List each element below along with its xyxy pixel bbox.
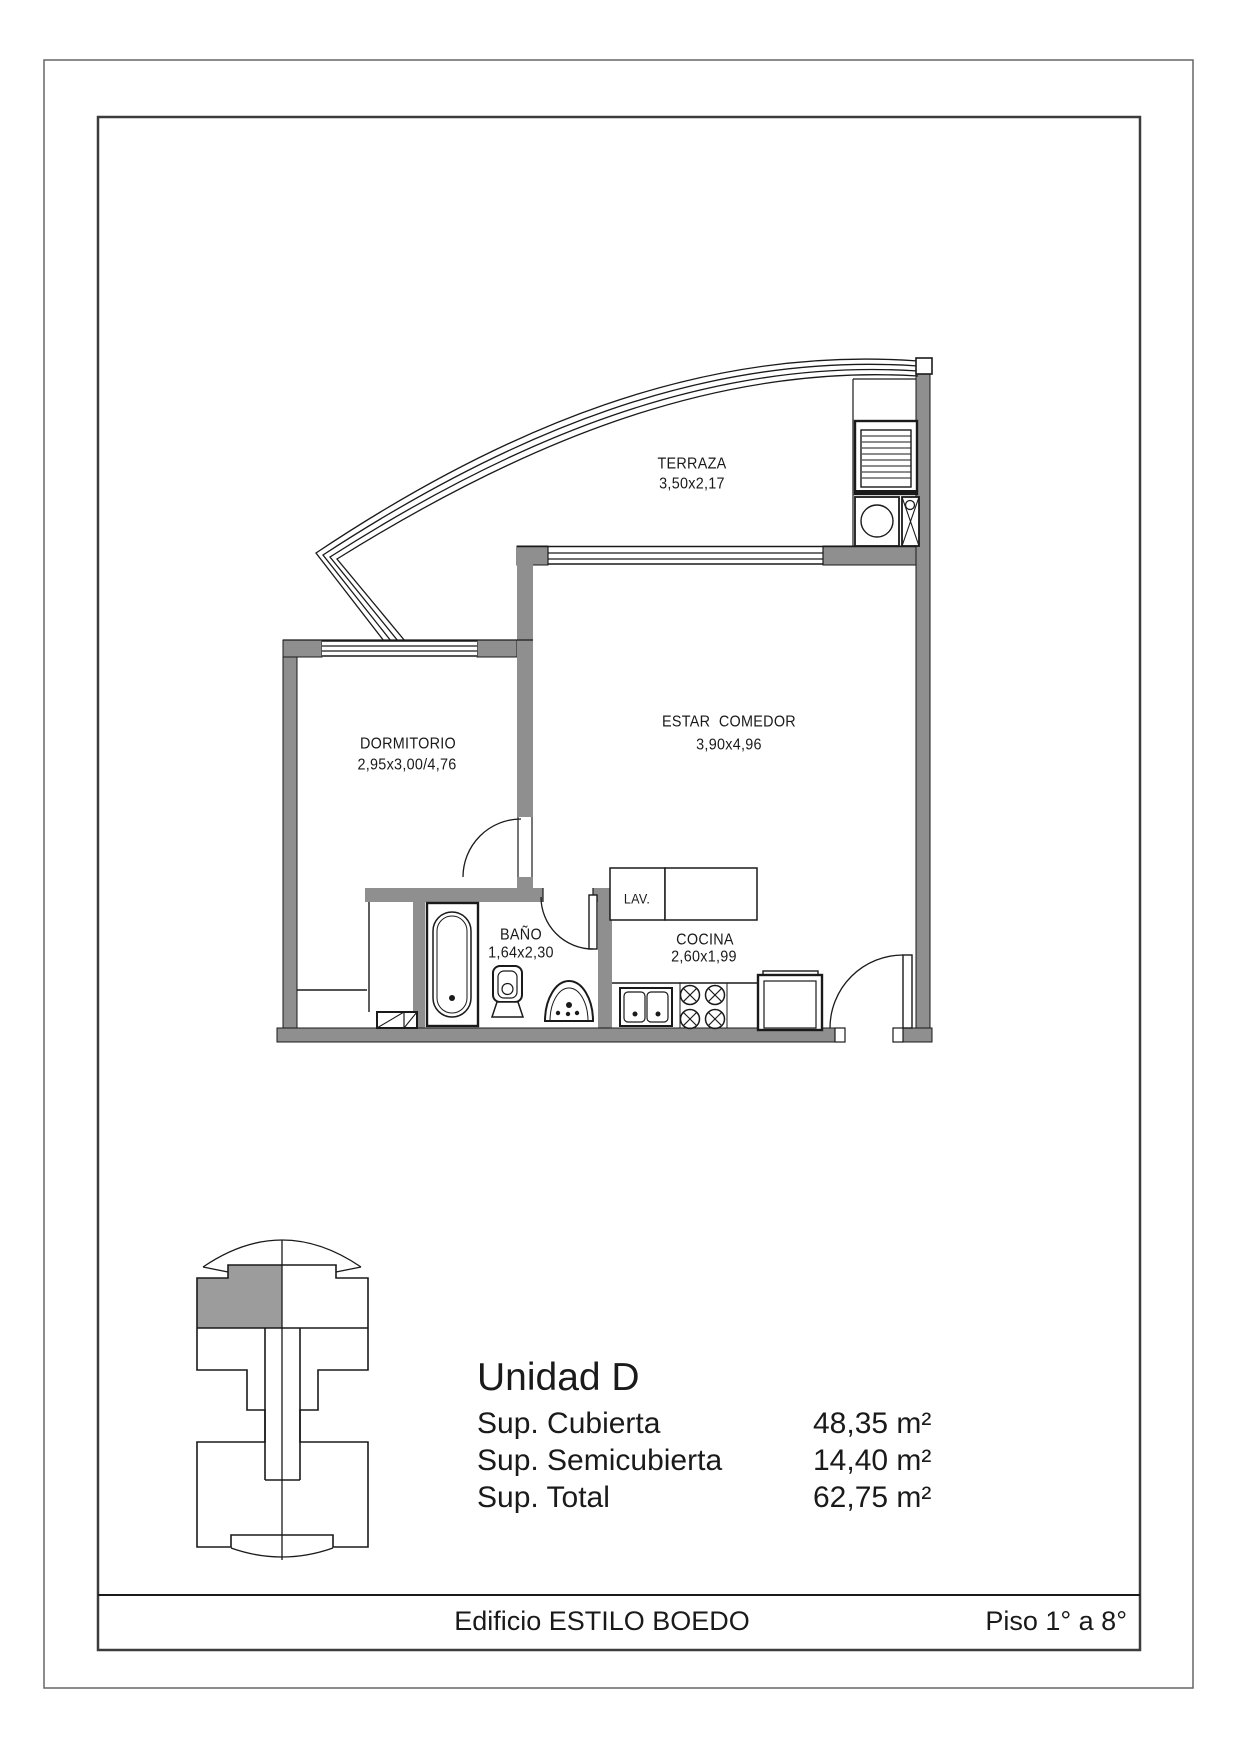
kitchen-sink-icon	[620, 988, 672, 1026]
bath-sink-icon	[545, 981, 593, 1021]
corner-post	[916, 358, 932, 374]
terrace-railing	[316, 359, 918, 641]
summary-row-label: Sup. Semicubierta	[477, 1445, 722, 1476]
building-name: Edificio ESTILO BOEDO	[454, 1606, 750, 1636]
bano-label: BAÑO	[500, 927, 542, 944]
dormitorio-label: DORMITORIO	[360, 736, 456, 753]
terrace-closet	[853, 379, 919, 547]
dormitorio-dims: 2,95x3,00/4,76	[357, 757, 456, 774]
estar-comedor-label: ESTAR COMEDOR	[662, 714, 796, 731]
cocina-label: COCINA	[676, 932, 734, 949]
dormitorio-door	[463, 817, 533, 877]
summary-row-label: Sup. Total	[477, 1482, 610, 1513]
shaft-icon	[902, 497, 919, 546]
dormitorio-window	[322, 640, 477, 657]
terraza-label: TERRAZA	[657, 456, 726, 473]
stove-icon	[681, 986, 725, 1029]
entrance-door	[830, 955, 912, 1042]
floor-range: Piso 1° a 8°	[985, 1606, 1127, 1636]
bathtub-icon	[427, 903, 478, 1026]
washer-icon	[855, 497, 899, 546]
estar-comedor-dims: 3,90x4,96	[696, 737, 762, 754]
fridge-icon	[758, 971, 822, 1030]
summary-row-value: 48,35 m²	[813, 1408, 931, 1439]
summary-row-value: 14,40 m²	[813, 1445, 931, 1476]
floor-plan-drawing	[0, 0, 1240, 1755]
lavadero-label: LAV.	[624, 891, 650, 908]
terraza-dims: 3,50x2,17	[659, 476, 725, 493]
toilet-icon	[492, 966, 523, 1017]
summary-row-value: 62,75 m²	[813, 1482, 931, 1513]
key-plan	[197, 1240, 368, 1560]
unit-title: Unidad D	[477, 1358, 640, 1398]
bano-dims: 1,64x2,30	[488, 945, 554, 962]
bathroom-door	[541, 888, 597, 949]
kitchen-fixtures	[612, 971, 822, 1030]
plan-sheet: TERRAZA 3,50x2,17 DORMITORIO 2,95x3,00/4…	[0, 0, 1240, 1755]
cocina-dims: 2,60x1,99	[671, 949, 737, 966]
summary-row-label: Sup. Cubierta	[477, 1408, 660, 1439]
closet-and-vent	[297, 990, 417, 1028]
